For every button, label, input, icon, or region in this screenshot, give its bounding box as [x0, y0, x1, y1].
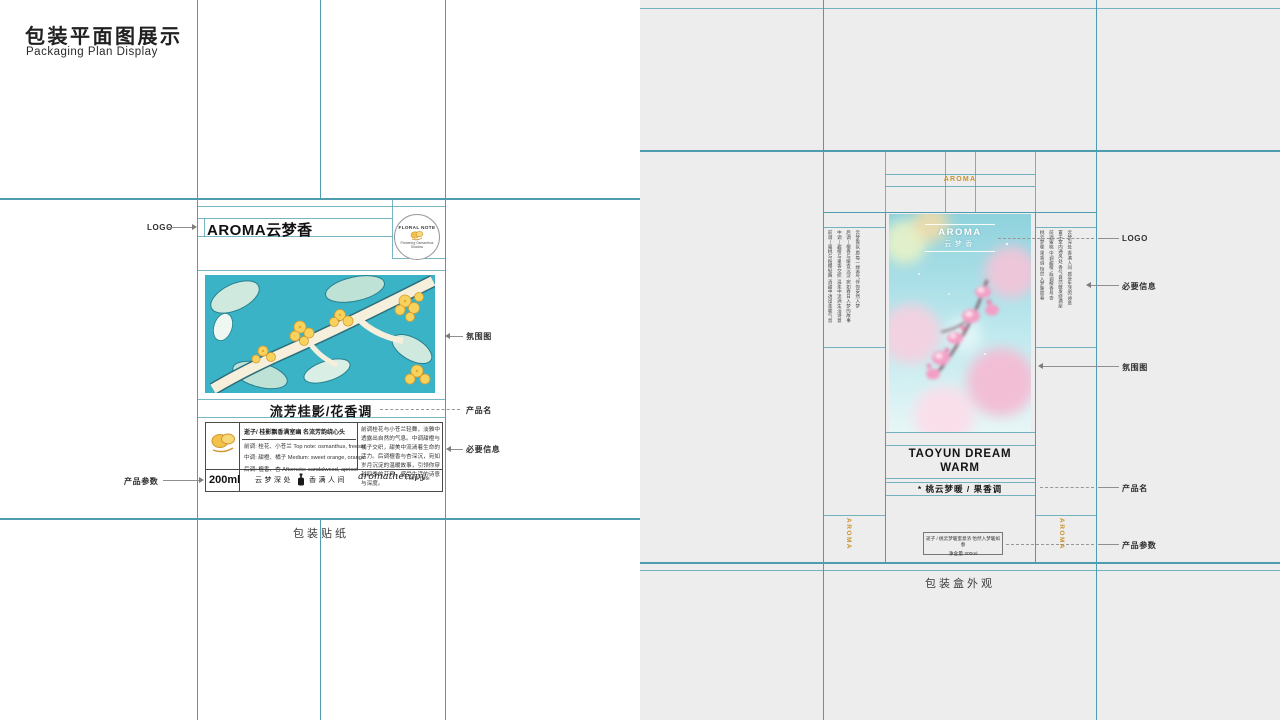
sticker-logo-text: AROMA云梦香	[207, 219, 313, 240]
page-title: 包装平面图展示	[25, 20, 183, 49]
guide-line	[1035, 515, 1096, 516]
note-base: 后调: 檀香、杏 Afternote: sandalwood, apricot	[244, 465, 360, 473]
guide-line	[885, 174, 1035, 175]
flap-column: 前调—蜜桃与粉樱轻舞 清甜中透出柔暖气息	[828, 230, 833, 344]
guide-line	[1035, 212, 1036, 562]
flap-column: 置于室内通风处 香气自然散发绕满屋	[1058, 230, 1063, 344]
overlay-line	[925, 251, 995, 252]
guide-line	[885, 186, 1035, 187]
box-caption: 包装盒外观	[925, 575, 995, 591]
leader-line	[163, 480, 199, 481]
guide-line	[0, 198, 640, 200]
note-top: 前调: 桂花、小苍兰 Top note: osmanthus, freesia	[244, 442, 360, 450]
flap-column: 中调—甜橙与果香交织 温柔中流淌生活诗意	[837, 230, 842, 344]
box-volume-box: 逝子 / 桃云梦暖蜜意浓 怡然入梦暖如春 净含量 200ml	[923, 532, 1003, 555]
note-mid: 中调: 甜橙、橘子 Medium: sweet orange, orange	[244, 453, 360, 461]
guide-line	[197, 0, 198, 720]
guide-line	[320, 518, 321, 720]
guide-line	[1035, 150, 1036, 212]
guide-line	[197, 270, 445, 271]
guide-line	[885, 212, 886, 562]
box-name-en-line1: TAOYUN DREAM	[885, 448, 1035, 460]
guide-line	[823, 0, 824, 720]
guide-line	[320, 0, 321, 198]
badge-subtext: Flowering Osmanthus Shadow	[400, 241, 434, 250]
sticker-info-box: 逝子/ 桂影飘香满室幽 名流芳韵绕心头 前调: 桂花、小苍兰 Top note:…	[205, 422, 443, 492]
osmanthus-flower-icon	[210, 431, 236, 455]
guide-line	[640, 562, 1280, 564]
box-front-logo-cn: 云梦香	[889, 239, 1031, 249]
flap-column: 云梦香氛 愿每一缕香气伴你安然入梦	[856, 230, 861, 344]
info-divider	[242, 439, 356, 440]
side-flap-logo: AROMA	[1058, 518, 1065, 560]
guide-line	[445, 0, 446, 720]
guide-line	[823, 212, 1097, 213]
box-top-flap-logo: AROMA	[930, 176, 990, 183]
guide-line	[885, 445, 1035, 446]
guide-line	[823, 227, 885, 228]
guide-line	[1035, 347, 1096, 348]
guide-line	[640, 150, 1280, 152]
leader-line	[1091, 285, 1119, 286]
label-product-params: 产品参数	[1122, 540, 1156, 551]
guide-line	[197, 206, 445, 207]
guide-line	[640, 8, 1280, 9]
floral-note-badge: FLORAL NOTE Flowering Osmanthus Shadow	[394, 214, 440, 260]
guide-line	[885, 495, 1035, 496]
leader-line-dashed	[1040, 487, 1094, 488]
label-atmosphere: 氛围图	[466, 331, 492, 342]
packaging-plan-display-page: { "page": { "title_cn": "包装平面图展示", "titl…	[0, 0, 1280, 720]
leader-line	[450, 336, 463, 337]
sticker-product-name: 流芳桂影/花香调	[197, 401, 445, 420]
leader-line	[1098, 487, 1119, 488]
flap-column: 前调蜜桃 中调甜橙 后调檀香与杏	[1049, 230, 1054, 344]
perfume-bottle-icon	[297, 473, 305, 486]
leader-line	[1098, 238, 1119, 239]
sticker-tagline: 逝子/ 桂影飘香满室幽 名流芳韵绕心头	[244, 427, 360, 436]
leader-line	[451, 449, 463, 450]
flap-column: 云梦深处 香满人间 感受生活的诗意	[1068, 230, 1073, 344]
guide-line	[640, 570, 1280, 571]
osmanthus-artwork	[205, 275, 435, 393]
box-front-logo: AROMA	[889, 227, 1031, 238]
box-tagline: 逝子 / 桃云梦暖蜜意浓 怡然入梦暖如春	[924, 536, 1002, 548]
guide-line	[1035, 227, 1096, 228]
flap-column: 桃云梦暖 果香调 怡然入梦暖如春	[1040, 230, 1045, 344]
guide-line	[0, 518, 640, 520]
slogan-right: 香满人间	[309, 475, 347, 485]
right-flap-text: 桃云梦暖 果香调 怡然入梦暖如春 前调蜜桃 中调甜橙 后调檀香与杏 置于室内通风…	[1040, 230, 1073, 344]
guide-line	[885, 478, 1035, 479]
slogan-left: 云梦深处	[255, 475, 293, 485]
arrowhead-icon	[199, 477, 204, 483]
label-atmosphere: 氛围图	[1122, 362, 1148, 373]
guide-line	[885, 150, 886, 212]
osmanthus-flower-icon	[410, 230, 424, 241]
label-required-info: 必要信息	[466, 444, 500, 455]
leader-line-dashed	[998, 238, 1094, 239]
fragrance-notes: 前调: 桂花、小苍兰 Top note: osmanthus, freesia …	[244, 442, 360, 476]
leader-line	[168, 227, 192, 228]
guide-line	[197, 399, 445, 400]
guide-line	[204, 218, 205, 237]
flap-column: 后调—檀香与暖杏沉淀 宛如春日入梦的故事	[846, 230, 851, 344]
label-logo: LOGO	[1122, 234, 1148, 243]
brand-slogan: 云梦深处 香满人间	[242, 473, 360, 486]
arrowhead-icon	[192, 224, 197, 230]
label-product-name: 产品名	[466, 405, 492, 416]
label-product-params: 产品参数	[124, 476, 158, 487]
guide-line	[392, 198, 393, 258]
label-required-info: 必要信息	[1122, 281, 1156, 292]
page-subtitle: Packaging Plan Display	[26, 46, 158, 58]
side-flap-logo: AROMA	[845, 518, 852, 560]
label-product-name: 产品名	[1122, 483, 1148, 494]
sticker-caption: 包装贴纸	[293, 525, 349, 541]
guide-line	[823, 515, 885, 516]
floral-note-tag: Floral note	[406, 476, 430, 482]
leader-line-dashed	[380, 409, 460, 410]
leader-line-dashed	[1006, 544, 1094, 545]
leader-line	[1098, 544, 1119, 545]
leader-line	[1043, 366, 1119, 367]
guide-line	[885, 432, 1035, 433]
overlay-line	[925, 224, 995, 225]
guide-line	[823, 347, 885, 348]
guide-line	[1096, 0, 1097, 720]
box-volume: 净含量 200ml	[924, 550, 1002, 557]
left-flap-text: 前调—蜜桃与粉樱轻舞 清甜中透出柔暖气息 中调—甜橙与果香交织 温柔中流淌生活诗…	[828, 230, 861, 344]
box-name-cn: * 桃云梦暖 / 果香调	[885, 483, 1035, 495]
box-name-en-line2: WARM	[885, 462, 1035, 474]
volume-text: 200ml	[209, 474, 240, 486]
